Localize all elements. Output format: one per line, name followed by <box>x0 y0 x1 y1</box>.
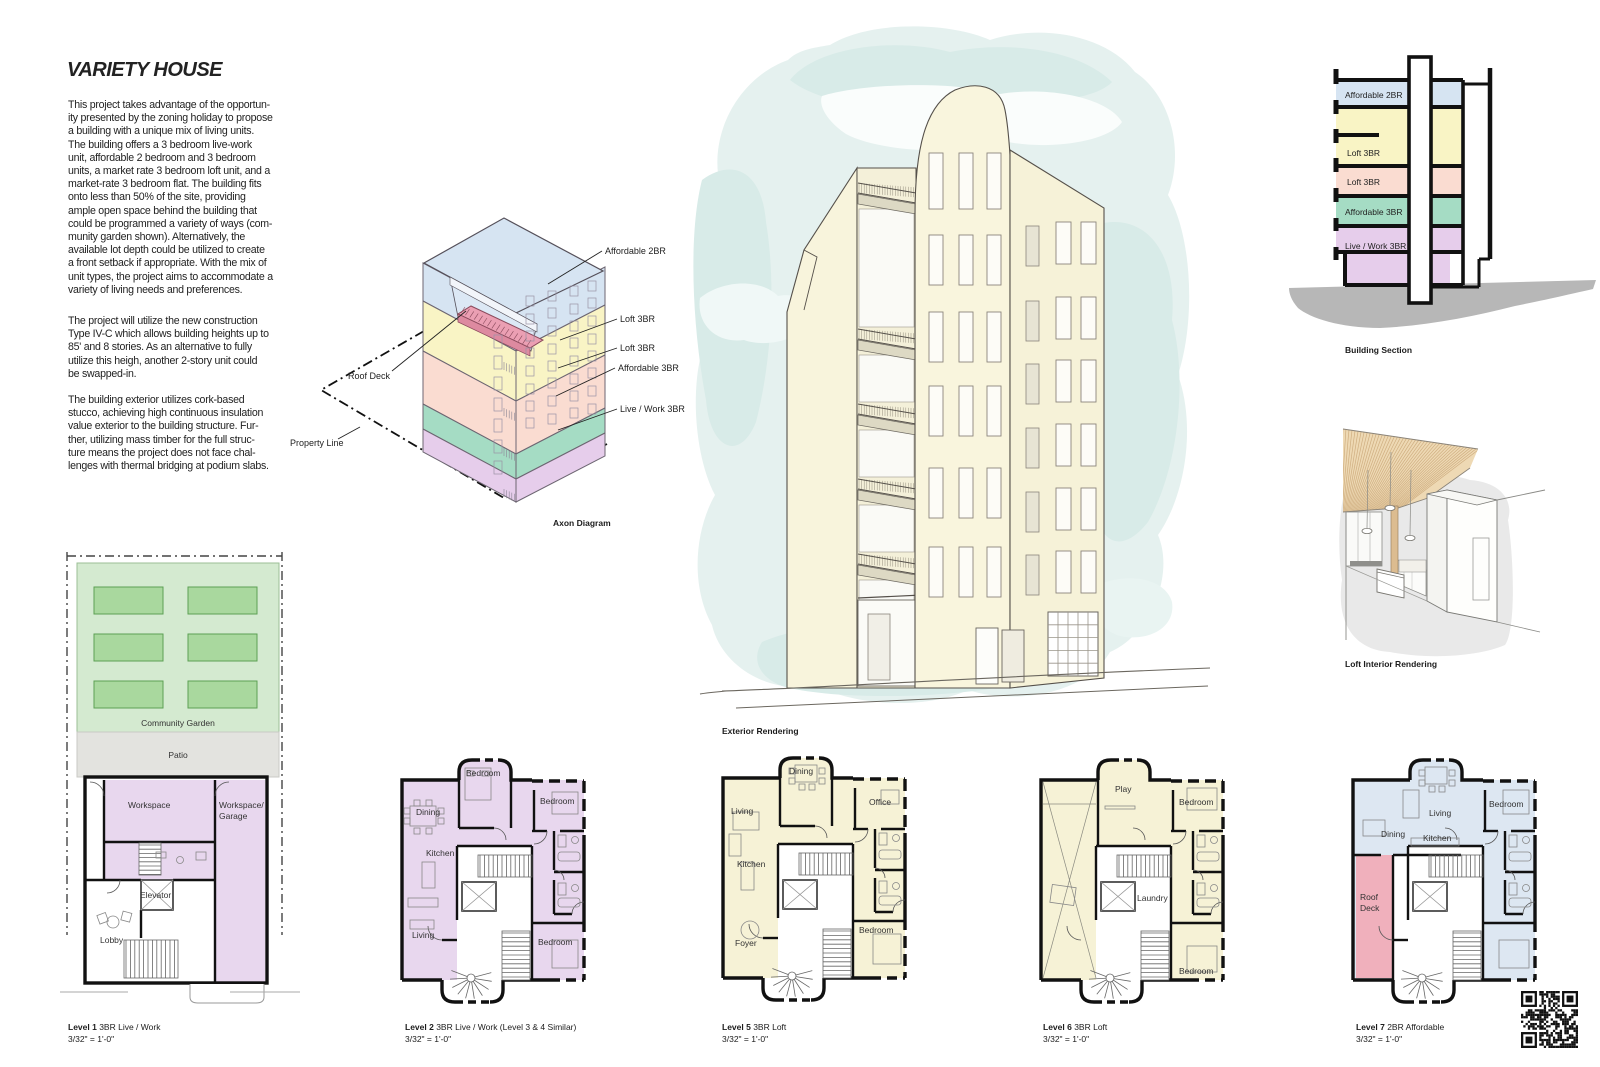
svg-text:Foyer: Foyer <box>735 938 757 948</box>
svg-text:Workspace/: Workspace/ <box>219 800 264 810</box>
svg-text:Community Garden: Community Garden <box>141 718 215 728</box>
svg-text:Bedroom: Bedroom <box>1179 797 1214 807</box>
svg-text:Live / Work 3BR: Live / Work 3BR <box>620 404 685 414</box>
svg-text:Roof Deck: Roof Deck <box>348 371 391 381</box>
svg-text:Affordable 2BR: Affordable 2BR <box>1345 90 1403 100</box>
svg-text:Bedroom: Bedroom <box>540 796 575 806</box>
svg-text:Bedroom: Bedroom <box>1179 966 1214 976</box>
svg-text:Kitchen: Kitchen <box>426 848 455 858</box>
svg-text:Loft 3BR: Loft 3BR <box>620 314 656 324</box>
svg-text:Affordable 2BR: Affordable 2BR <box>605 246 666 256</box>
svg-text:Affordable 3BR: Affordable 3BR <box>1345 207 1403 217</box>
svg-text:Dining: Dining <box>1381 829 1405 839</box>
svg-text:Office: Office <box>869 797 891 807</box>
svg-text:Bedroom: Bedroom <box>859 925 894 935</box>
svg-text:Live / Work 3BR: Live / Work 3BR <box>1345 241 1406 251</box>
svg-text:Living: Living <box>1429 808 1451 818</box>
svg-text:Elevator: Elevator <box>140 890 171 900</box>
svg-text:Deck: Deck <box>1360 903 1380 913</box>
svg-text:Bedroom: Bedroom <box>466 768 501 778</box>
svg-text:Roof: Roof <box>1360 892 1379 902</box>
svg-text:Loft 3BR: Loft 3BR <box>620 343 656 353</box>
svg-text:Kitchen: Kitchen <box>1423 833 1452 843</box>
svg-text:Bedroom: Bedroom <box>1489 799 1524 809</box>
svg-text:Dining: Dining <box>789 766 813 776</box>
svg-text:Lobby: Lobby <box>100 935 124 945</box>
svg-text:Loft 3BR: Loft 3BR <box>1347 177 1380 187</box>
svg-text:Patio: Patio <box>168 750 188 760</box>
svg-text:Property Line: Property Line <box>290 438 344 448</box>
svg-text:Affordable 3BR: Affordable 3BR <box>618 363 679 373</box>
svg-text:Kitchen: Kitchen <box>737 859 766 869</box>
svg-text:Laundry: Laundry <box>1137 893 1168 903</box>
svg-text:Living: Living <box>731 806 753 816</box>
svg-text:Dining: Dining <box>416 807 440 817</box>
svg-text:Loft 3BR: Loft 3BR <box>1347 148 1380 158</box>
svg-text:Play: Play <box>1115 784 1132 794</box>
svg-text:Garage: Garage <box>219 811 248 821</box>
svg-text:Workspace: Workspace <box>128 800 171 810</box>
svg-text:Bedroom: Bedroom <box>538 937 573 947</box>
svg-text:Living: Living <box>412 930 434 940</box>
